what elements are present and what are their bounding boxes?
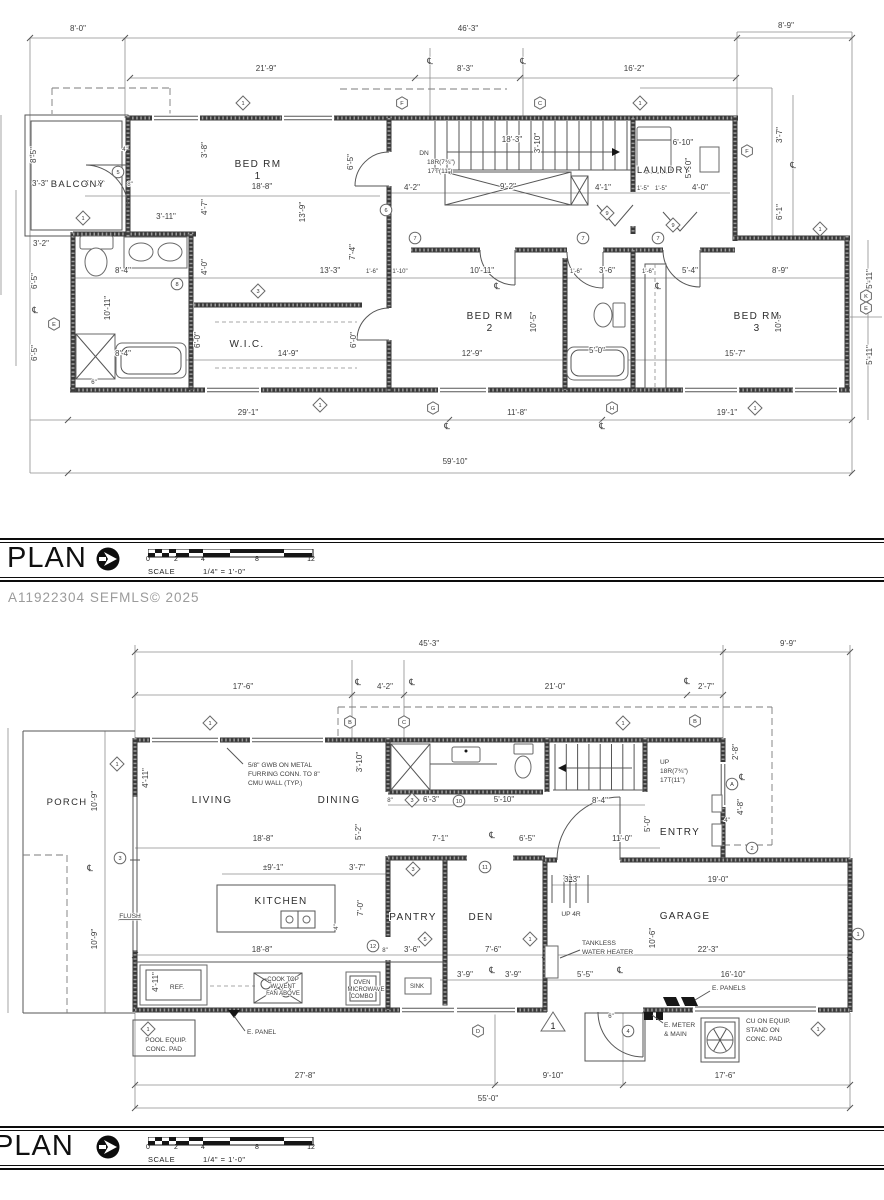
- scale-tick-label: 8: [255, 556, 259, 563]
- dimension-label: 45'-3": [419, 639, 440, 648]
- keynote-label: 1: [318, 403, 321, 409]
- annotation-label: 17T(11"): [660, 777, 685, 784]
- keynote-label: 5: [423, 937, 426, 943]
- north-arrow-icon: [95, 546, 121, 572]
- centerline-symbol: ℄: [354, 677, 361, 687]
- tankless-water-heater: [545, 946, 558, 978]
- dryer: [700, 147, 719, 172]
- dimension-label: 4": [334, 924, 340, 929]
- keynote-label: F: [400, 101, 404, 107]
- dimension-label: 59'-10": [443, 457, 468, 466]
- toilet-tank: [514, 744, 533, 754]
- divider: [0, 1165, 884, 1166]
- keynote-label: E: [864, 306, 868, 312]
- keynote-label: 8: [175, 282, 178, 288]
- electric-meter: [644, 1012, 653, 1020]
- dimension-label: 11'-0": [612, 834, 632, 843]
- keynote-label: C: [538, 101, 542, 107]
- annotation-label: CONC. PAD: [746, 1036, 782, 1043]
- room-label: 2: [487, 323, 494, 334]
- keynote-label: 1: [115, 762, 118, 768]
- dimension-label: 1'-6": [570, 269, 582, 275]
- dimension-label: 2'-8": [731, 744, 740, 760]
- annotation-label: POOL EQUIP.: [145, 1037, 187, 1044]
- mls-watermark: A11922304 SEFMLS© 2025: [8, 590, 200, 605]
- stair-arrow-head: [558, 764, 566, 772]
- keynote-label: 1: [241, 101, 244, 107]
- keynote-label: 9: [605, 211, 608, 217]
- annotation-label: COOK TOP: [267, 977, 298, 983]
- annotation-label: 5/8" GWB ON METAL: [248, 762, 312, 769]
- dimension-label: 5'-2": [354, 824, 363, 840]
- centerline-symbol: ℄: [488, 830, 495, 840]
- dimension-label: 3'-2": [33, 239, 49, 248]
- keynote-label: E: [52, 322, 56, 328]
- annotation-label: 18R(7¾"): [427, 159, 455, 166]
- room-label: DINING: [318, 795, 361, 806]
- window-clear: [438, 386, 488, 395]
- scale-bar: 024812 SCALE 1/4" = 1'-0": [148, 1133, 348, 1167]
- dimension-label: 16'-10": [721, 970, 746, 979]
- keynote-label: G: [431, 406, 435, 412]
- dimension-label: 3'-11": [156, 212, 176, 221]
- keynote-label: F: [745, 149, 749, 155]
- dimension-label: 19'-0": [708, 875, 729, 884]
- annotation-label: CONC. PAD: [146, 1046, 182, 1053]
- annotation-label: & MAIN: [664, 1031, 687, 1038]
- dimension-label: 10'-9": [90, 929, 99, 950]
- dimension-label: 4'-0": [200, 259, 209, 275]
- annotation-label: E. METER: [664, 1022, 695, 1029]
- window-clear: [152, 114, 200, 123]
- annotation-label: FLUSH: [119, 913, 141, 920]
- keynote-label: 1: [753, 406, 756, 412]
- dimension-label: 5'-5": [577, 970, 593, 979]
- dimension-label: 13'-3": [320, 266, 341, 275]
- dimension-label: 3'-9": [457, 970, 473, 979]
- divider: [0, 542, 884, 543]
- sink-basin: [129, 243, 153, 261]
- annotation-label: UP 4R: [561, 911, 581, 918]
- keynote-label: C: [402, 720, 406, 726]
- keynote-label: 12: [370, 944, 376, 950]
- dimension-label: 4'-8": [736, 799, 745, 815]
- centerline-symbol: ℄: [488, 965, 495, 975]
- scale-tick-label: 2: [174, 556, 178, 563]
- dimension-label: 18'-8": [252, 182, 273, 191]
- dimension-label: 4'-1": [595, 183, 611, 192]
- annotation-label: SINK: [410, 984, 424, 990]
- centerline-symbol: ℄: [683, 676, 690, 686]
- dimension-label: 4'-11": [151, 972, 160, 992]
- dimension-label: 7'-4": [348, 244, 357, 260]
- dimension-label: 3'-10": [533, 133, 542, 154]
- burner: [303, 916, 310, 923]
- dimension-label: 9'-9": [780, 639, 796, 648]
- centerline-symbol: ℄: [616, 965, 623, 975]
- dimension-label: 6'-5": [519, 834, 535, 843]
- annotation-label: COMBO: [351, 994, 374, 1000]
- keynote-label: 6: [384, 208, 387, 214]
- keynote-label: 11: [482, 865, 488, 871]
- annotation-label: REF.: [170, 984, 184, 991]
- window-clear: [250, 736, 325, 745]
- scale-value: 1/4" = 1'-0": [203, 1155, 313, 1164]
- keynote-label: H: [610, 406, 614, 412]
- toilet-bowl: [85, 248, 107, 276]
- dimension-label: 10'-5": [529, 312, 538, 333]
- keynote-label: D: [476, 1029, 480, 1035]
- dimension-label: 21'-0": [545, 682, 566, 691]
- keynote-label: 1: [208, 721, 211, 727]
- room-label: LIVING: [192, 795, 233, 806]
- dimension-label: 8'-9": [772, 266, 788, 275]
- dimension-label: 8": [127, 182, 132, 188]
- dimension-label: 7'-6": [485, 945, 501, 954]
- keynote-label: 1: [528, 937, 531, 943]
- door-swing: [355, 152, 389, 186]
- plan-title-bar-lower: PLAN 024812 SCALE 1/4" = 1'-0": [0, 1126, 884, 1170]
- room-label: PANTRY: [389, 912, 436, 923]
- kitchen-island: [217, 885, 335, 932]
- keynote-label: 2: [750, 846, 753, 852]
- keynote-label: 1: [856, 932, 859, 938]
- dimension-label: 8": [382, 948, 387, 954]
- keynote-label: B: [348, 720, 352, 726]
- centerline-symbol: ℄: [519, 56, 526, 66]
- room-label: 1: [255, 171, 262, 182]
- annotation-label: WATER HEATER: [582, 949, 633, 956]
- room-label: W.I.C.: [229, 339, 264, 350]
- dimension-label: 17'-6": [233, 682, 254, 691]
- toilet-tank: [613, 303, 625, 327]
- keynote-label: 1: [818, 227, 821, 233]
- dimension-label: 8'-5": [29, 147, 38, 163]
- room-label: LAUNDRY: [637, 165, 691, 176]
- electrical-panel-mark: [663, 997, 680, 1006]
- dimension-label: 3'-9": [505, 970, 521, 979]
- dimension-label: 4'-11": [141, 768, 150, 788]
- annotation-label: FURRING CONN. TO 8": [248, 771, 320, 778]
- room-label: BED RM: [235, 159, 282, 170]
- dimension-label: 3'-3": [32, 179, 48, 188]
- centerline-symbol: ℄: [426, 56, 433, 66]
- room-label: GARAGE: [660, 911, 711, 922]
- dimension-label: 6'-0": [349, 332, 358, 348]
- dimension-label: 6'-0": [193, 332, 202, 348]
- dimension-label: 4": [122, 147, 127, 153]
- dimension-label: 18'-8": [252, 945, 273, 954]
- toilet-bowl: [594, 303, 612, 327]
- dimension-label: 3'-7": [775, 127, 784, 143]
- dimension-label: 6'-10": [673, 138, 694, 147]
- dimension-label: 6'-5": [346, 154, 355, 170]
- annotation-label: FAN ABOVE: [266, 991, 300, 997]
- dimension-label: 22'-3": [698, 945, 719, 954]
- window-clear: [683, 386, 739, 395]
- dimension-label: 16'-2": [624, 64, 645, 73]
- faucet: [465, 750, 468, 753]
- leader-line: [227, 748, 243, 764]
- dimension-label: 4": [724, 818, 729, 824]
- dimension-label: 8'-0": [70, 24, 86, 33]
- keynote-label: A: [730, 782, 734, 788]
- annotation-label: TANKLESS: [582, 940, 617, 947]
- scale-value: 1/4" = 1'-0": [203, 567, 313, 576]
- scale-word: SCALE: [148, 1155, 175, 1164]
- dimension-label: 8'-9": [778, 21, 794, 30]
- keynote-label: 7: [413, 236, 416, 242]
- burner: [286, 916, 293, 923]
- dimension-label: 6'-1": [775, 204, 784, 220]
- room-label: BED RM: [734, 311, 781, 322]
- dimension-label: 10'-9": [90, 791, 99, 812]
- keynote-label: 4: [626, 1029, 629, 1035]
- centerline-symbol: ℄: [654, 281, 661, 291]
- keynote-label: 1: [146, 1027, 149, 1033]
- keynote-label: 1: [816, 1027, 819, 1033]
- window-clear: [205, 386, 261, 395]
- dimension-label: 3'-10": [355, 752, 364, 773]
- centerline-symbol: ℄: [408, 677, 415, 687]
- upper-floor-plan: 8'-0"46'-3"8'-9"21'-9"8'-3"16'-2"8'-5"3'…: [1, 21, 882, 476]
- dimension-label: 1'-5": [637, 186, 649, 192]
- centerline-symbol: ℄: [789, 160, 796, 170]
- annotation-label: UP: [660, 759, 670, 766]
- stoop: [585, 1013, 645, 1061]
- dimension-label: 15'-7": [725, 349, 746, 358]
- annotation-label: CU ON EQUIP.: [746, 1018, 791, 1025]
- dimension-label: 21'-9": [256, 64, 277, 73]
- dimension-label: 12'-9": [462, 349, 483, 358]
- scale-tick-label: 2: [174, 1144, 178, 1151]
- leader-line: [234, 1016, 245, 1031]
- plan-title: PLAN: [7, 542, 87, 575]
- keynote-label: 1: [550, 1021, 555, 1031]
- annotation-label: 17T(11"): [428, 168, 453, 175]
- dimension-label: 8'-3": [457, 64, 473, 73]
- dimension-label: 19'-1": [717, 408, 738, 417]
- bifold-door: [663, 212, 697, 231]
- scale-bar: 024812 SCALE 1/4" = 1'-0": [148, 545, 348, 579]
- annotation-label: E. PANEL: [247, 1029, 277, 1036]
- scale-tick-label: 8: [255, 1144, 259, 1151]
- annotation-label: OVEN: [353, 980, 370, 986]
- garage-door-clear: [693, 1005, 818, 1014]
- dimension-label: 4'-2": [404, 183, 420, 192]
- dimension-label: 5'-11": [865, 269, 874, 289]
- scale-tick-label: 12: [307, 1144, 315, 1151]
- annotation-label: DN: [419, 150, 429, 157]
- leader-line: [695, 991, 710, 1000]
- stair-arrow-head: [612, 148, 620, 156]
- keynote-label: 3: [118, 856, 121, 862]
- dimension-label: 8'-4": [115, 266, 131, 275]
- keynote-label: 10: [456, 799, 462, 805]
- dimension-label: 3'-7": [349, 863, 365, 872]
- dimension-label: 17'-6": [715, 1071, 736, 1080]
- dimension-label: 2'-7": [698, 682, 714, 691]
- centerline-symbol: ℄: [738, 772, 745, 782]
- dimension-label: 1'-6": [366, 269, 378, 275]
- toilet-tank: [80, 236, 113, 249]
- divider: [0, 1130, 884, 1131]
- annotation-label: E. PANELS: [712, 985, 746, 992]
- window-clear: [400, 1006, 456, 1015]
- annotation-label: MICROWAVE: [348, 987, 385, 993]
- keynote-label: 1: [81, 216, 84, 222]
- window-clear: [793, 386, 839, 395]
- dimension-label: 13'-9": [298, 202, 307, 223]
- divider: [0, 577, 884, 578]
- dimension-label: 14'-9": [278, 349, 299, 358]
- dimension-label: 6": [91, 380, 96, 386]
- room-label: KITCHEN: [255, 896, 308, 907]
- centerline-symbol: ℄: [31, 305, 38, 315]
- plan-title: PLAN: [0, 1130, 74, 1163]
- door-swing: [357, 308, 389, 340]
- dimension-label: 8'-4": [115, 349, 131, 358]
- keynote-label: 5: [116, 170, 119, 176]
- entry-shelf: [712, 795, 722, 812]
- dimension-label: 5'-0": [643, 816, 652, 832]
- room-label: DEN: [468, 912, 493, 923]
- scale-tick-label: 4: [201, 556, 205, 563]
- dimension-label: 4'-7": [200, 199, 209, 215]
- dimension-label: 7'-0": [356, 900, 365, 916]
- room-label: ENTRY: [660, 827, 700, 838]
- dimension-label: ±9'-1": [263, 863, 283, 872]
- door-swing: [598, 1012, 643, 1057]
- scale-tick-label: 0: [146, 1144, 150, 1151]
- dimension-label: 5'-11": [865, 345, 874, 365]
- centerline-symbol: ℄: [86, 863, 93, 873]
- annotation-label: W/ VENT: [271, 984, 296, 990]
- keynote-label: K: [864, 294, 868, 300]
- room-label: PORCH: [47, 797, 88, 808]
- dimension-label: 18'-3": [502, 135, 523, 144]
- dimension-label: 4'-2": [377, 682, 393, 691]
- dimension-label: 6'-5": [30, 273, 39, 289]
- scale-tick-labels: 024812: [148, 556, 314, 565]
- dimension-label: 5'-4": [682, 266, 698, 275]
- dimension-label: 5'-0": [589, 346, 605, 355]
- annotation-label: 18R(7¾"): [660, 768, 688, 775]
- dimension-label: 8": [387, 798, 392, 804]
- window-clear: [455, 1006, 517, 1015]
- dimension-label: 55'-0": [478, 1094, 499, 1103]
- keynote-label: B: [693, 719, 697, 725]
- dimension-label: 3'-3": [564, 875, 580, 884]
- dimension-label: 6'-5": [30, 345, 39, 361]
- dimension-label: 10'-11": [103, 296, 112, 320]
- dimension-label: 5'-10": [494, 795, 515, 804]
- dimension-label: 6'-3": [423, 795, 439, 804]
- window-clear: [282, 114, 334, 123]
- lower-floor-plan: 45'-3"9'-9"17'-6"4'-2"21'-0"2'-7"10'-9"1…: [8, 639, 864, 1111]
- balcony-rail: [31, 121, 122, 230]
- dimension-label: 18'-8": [253, 834, 274, 843]
- scale-tick-labels: 024812: [148, 1144, 314, 1153]
- sink-basin: [158, 243, 182, 261]
- scale-tick-label: 4: [201, 1144, 205, 1151]
- dimension-label: 46'-3": [458, 24, 479, 33]
- keynote-label: 7: [656, 236, 659, 242]
- dimension-label: 7'-1": [432, 834, 448, 843]
- window-clear: [150, 736, 220, 745]
- floorplan-sheet: 8'-0"46'-3"8'-9"21'-9"8'-3"16'-2"8'-5"3'…: [0, 0, 884, 1200]
- dimension-label: 10'-6": [648, 928, 657, 949]
- centerline-symbol: ℄: [493, 281, 500, 291]
- dimension-label: 11'-8": [507, 408, 527, 417]
- dimension-label: 9'-10": [543, 1071, 564, 1080]
- keynote-label: 1: [621, 721, 624, 727]
- dimension-label: 1'-10": [392, 269, 407, 275]
- dimension-label: 9'-2": [500, 182, 516, 191]
- dimension-label: 1'-6": [642, 269, 654, 275]
- sink-basin: [452, 747, 480, 762]
- dimension-label: 6": [608, 1014, 613, 1020]
- room-label: BED RM: [467, 311, 514, 322]
- centerline-symbol: ℄: [443, 421, 450, 431]
- keynote-label: 1: [638, 101, 641, 107]
- room-label: BALCONY: [51, 179, 106, 190]
- keynote-label: 3: [256, 289, 259, 295]
- scale-tick-label: 0: [146, 556, 150, 563]
- north-arrow-icon: [95, 1134, 121, 1160]
- leader-line: [560, 950, 580, 958]
- dimension-label: 3'-6": [599, 266, 615, 275]
- dimension-label: 8'-4": [592, 796, 608, 805]
- dimension-label: 3'-8": [200, 142, 209, 158]
- centerline-symbol: ℄: [598, 421, 605, 431]
- dimension-label: 10'-11": [470, 266, 494, 275]
- plan-title-bar-upper: PLAN 024812 SCALE 1/4" = 1'-0": [0, 538, 884, 582]
- keynote-label: 3: [411, 867, 414, 873]
- dimension-label: 29'-1": [238, 408, 259, 417]
- keynote-label: 9: [671, 223, 674, 229]
- electrical-panel-mark: [681, 997, 698, 1006]
- scale-word: SCALE: [148, 567, 175, 576]
- door-swing: [557, 797, 620, 860]
- dimension-label: 3'-6": [404, 945, 420, 954]
- keynote-label: 3: [410, 798, 413, 804]
- dimension-label: 1'-5": [655, 186, 667, 192]
- annotation-label: CMU WALL (TYP.): [248, 780, 302, 787]
- keynote-label: 7: [581, 236, 584, 242]
- room-label: 3: [754, 323, 761, 334]
- dimension-label: 4'-0": [692, 183, 708, 192]
- entry-shelf: [712, 824, 722, 846]
- dimension-label: 27'-8": [295, 1071, 316, 1080]
- annotation-label: STAND ON: [746, 1027, 780, 1034]
- toilet-bowl: [515, 756, 531, 778]
- scale-tick-label: 12: [307, 556, 315, 563]
